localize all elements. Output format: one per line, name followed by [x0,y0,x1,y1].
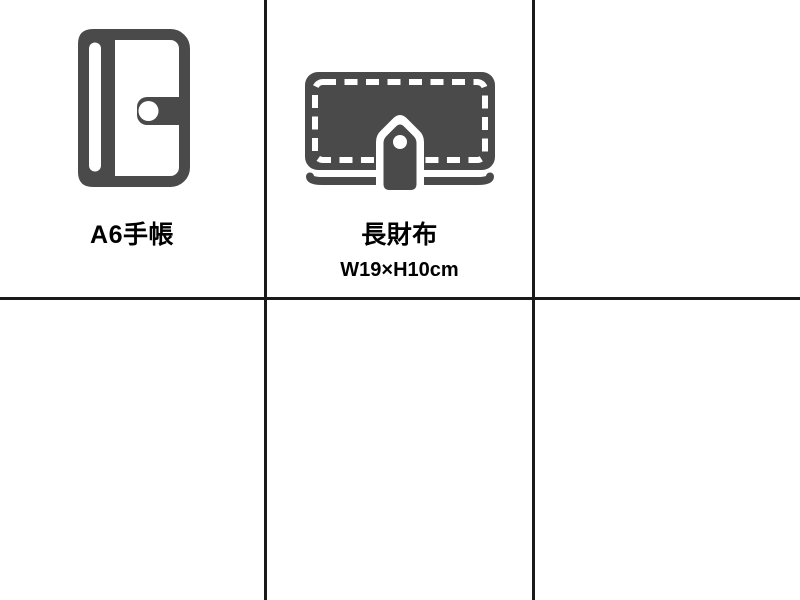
item-label: A6手帳 [0,220,264,250]
cell-empty-bottom-right [535,300,800,600]
cell-empty-top-right [535,0,800,297]
wallet-icon [300,62,500,194]
item-label: 長財布 [267,220,532,250]
strap-snap-hole [393,135,407,149]
size-comparison-chart: A6手帳 長財布 W19×H10cm [0,0,800,600]
cell-long-wallet: 長財布 W19×H10cm [267,0,532,297]
cell-empty-bottom-left [0,300,264,600]
wallet-strap [384,125,417,191]
snap-button-hole [139,101,159,121]
notebook-icon [78,29,190,187]
item-size: W19×H10cm [267,257,532,283]
cell-a6-notebook: A6手帳 [0,0,264,297]
cell-empty-bottom-middle [267,300,532,600]
